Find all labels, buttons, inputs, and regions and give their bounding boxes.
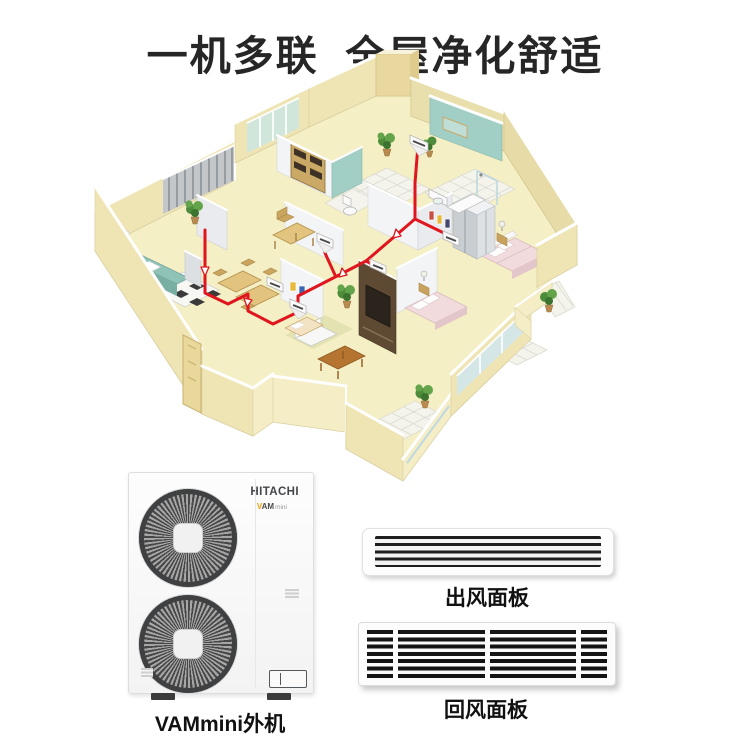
logo-am: AM	[262, 502, 274, 511]
outdoor-unit-body: HITACHI VAMmini	[128, 472, 314, 694]
side-vent	[285, 589, 299, 599]
outlet-panel-slats	[375, 536, 601, 567]
unit-foot	[267, 693, 291, 700]
fan-grille-bottom-icon	[139, 595, 237, 693]
return-air-panel	[358, 622, 616, 686]
brand-logo: HITACHI	[250, 486, 299, 498]
outlet-panel-caption: 出风面板	[362, 582, 612, 612]
grille-column	[490, 630, 577, 678]
side-vent	[141, 668, 153, 677]
air-outlet-panel	[362, 528, 614, 576]
house-floorplan-illustration	[85, 38, 675, 493]
vam-mini-logo: VAMmini	[257, 503, 287, 512]
fan-grille-top-icon	[139, 489, 237, 587]
logo-mini: mini	[275, 504, 287, 511]
return-panel-grille	[367, 630, 607, 678]
entry-door	[183, 335, 201, 413]
unit-foot	[151, 693, 175, 700]
outdoor-unit: HITACHI VAMmini VAMmini外机	[128, 472, 312, 738]
connection-box	[269, 670, 307, 688]
product-infographic: 一机多联 全屋净化舒适	[0, 0, 750, 750]
grille-column	[367, 630, 393, 678]
fan-hub	[173, 629, 203, 659]
grille-column	[398, 630, 485, 678]
outdoor-unit-caption: VAMmini外机	[128, 708, 312, 738]
fan-hub	[173, 523, 203, 553]
grille-column	[581, 630, 607, 678]
return-panel-caption: 回风面板	[358, 694, 614, 724]
